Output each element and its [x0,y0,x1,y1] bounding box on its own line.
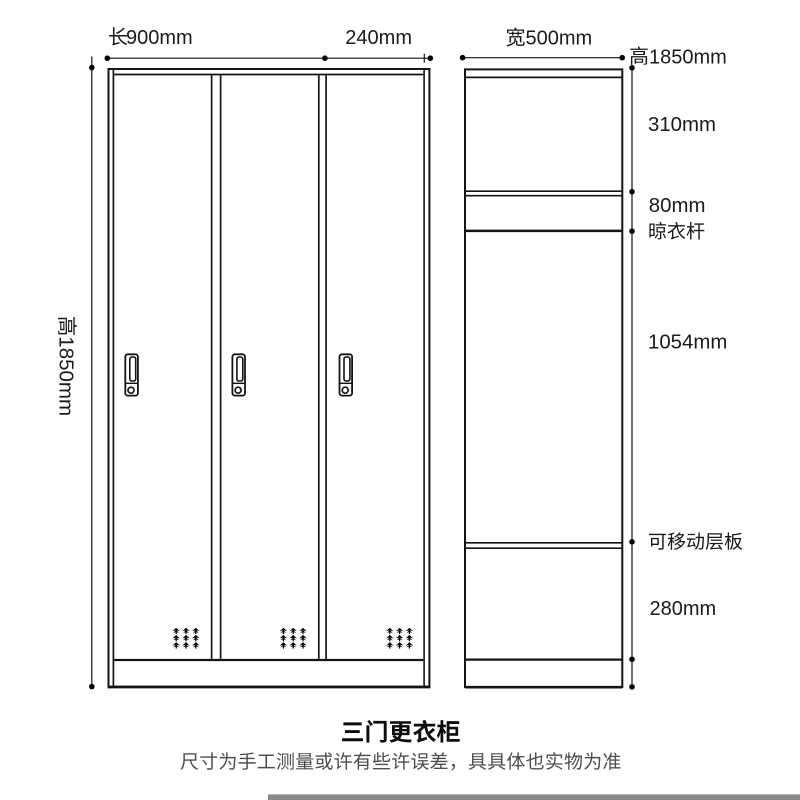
svg-text:280mm: 280mm [650,598,717,620]
svg-text:1054mm: 1054mm [648,332,727,354]
svg-text:80mm: 80mm [649,195,706,217]
svg-text:900mm: 900mm [126,27,193,49]
svg-text:310mm: 310mm [648,114,716,136]
svg-text:240mm: 240mm [345,27,412,49]
svg-text:1850mm: 1850mm [649,46,727,68]
svg-text:1850mm: 1850mm [55,336,78,416]
svg-text:500mm: 500mm [526,28,593,50]
